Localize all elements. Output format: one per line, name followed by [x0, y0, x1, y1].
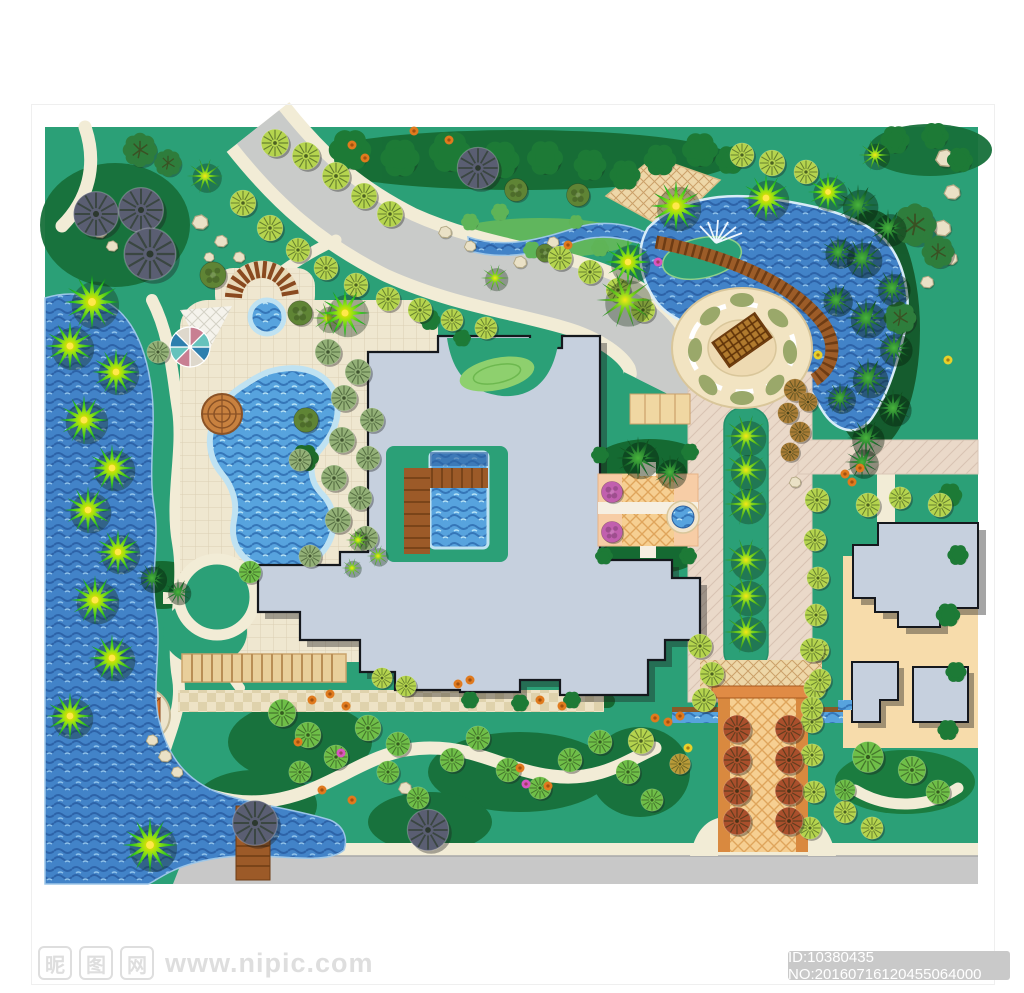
flower-shrub: [848, 478, 857, 487]
lot-water: [838, 700, 852, 710]
flower-shrub: [445, 136, 454, 145]
flower-shrub: [326, 690, 335, 699]
flower-shrub: [348, 141, 357, 150]
flower-shrub: [536, 696, 545, 705]
wood-deck: [202, 394, 242, 434]
flower-shrub: [342, 702, 351, 711]
flower-shrub: [558, 702, 567, 711]
watermark-id-badge: ID:10380435 NO:20160716120455064000: [788, 951, 1010, 980]
garden-trellis: [182, 654, 346, 682]
courtyard-pool: [672, 506, 694, 528]
flower-shrub: [814, 351, 823, 360]
flower-shrub: [466, 676, 475, 685]
flower-shrub: [841, 470, 850, 479]
flower-shrub: [454, 680, 463, 689]
flower-shrub: [564, 241, 573, 250]
round-pool: [250, 300, 284, 334]
flower-shrub: [651, 714, 660, 723]
watermark-logo-char: 昵: [38, 946, 72, 980]
flower-shrub: [410, 127, 419, 136]
flower-shrub: [684, 744, 693, 753]
courtyard-water-garden: [386, 446, 508, 562]
watermark-logo-char: 网: [120, 946, 154, 980]
beach-umbrella: [170, 327, 210, 367]
flower-shrub: [318, 786, 327, 795]
flower-shrub: [337, 749, 346, 758]
flower-shrub: [664, 718, 673, 727]
flower-shrub: [654, 258, 663, 267]
flower-shrub: [516, 764, 525, 773]
flower-shrub: [294, 738, 303, 747]
screenshot-page: 昵 图 网 www.nipic.com ID:10380435 NO:20160…: [0, 0, 1024, 993]
flower-shrub: [308, 696, 317, 705]
flower-shrub: [544, 782, 553, 791]
watermark-url: www.nipic.com: [165, 948, 374, 979]
flower-shrub: [676, 712, 685, 721]
flower-shrub: [944, 356, 953, 365]
watermark-logo-char: 图: [79, 946, 113, 980]
site-plan: [0, 0, 1024, 993]
flower-shrub: [348, 796, 357, 805]
flower-shrub: [361, 154, 370, 163]
flower-shrub: [856, 464, 865, 473]
flower-shrub: [522, 780, 531, 789]
watermark-logo: 昵 图 网 www.nipic.com: [38, 946, 374, 980]
